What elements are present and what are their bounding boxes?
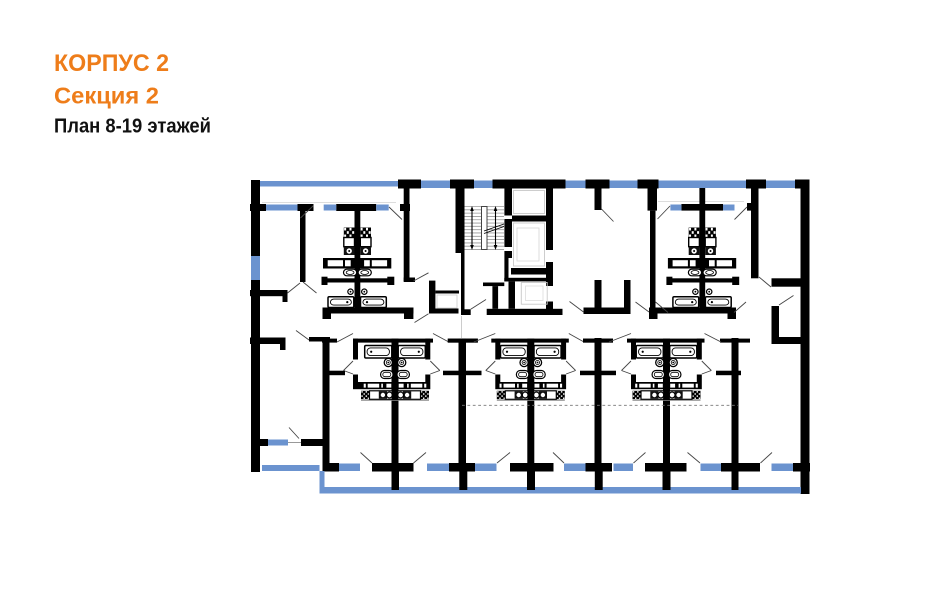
svg-text:КОРПУС 2: КОРПУС 2 [54,50,169,77]
svg-text:Секция 2: Секция 2 [54,83,159,109]
svg-text:План 8-19 этажей: План 8-19 этажей [54,115,211,137]
